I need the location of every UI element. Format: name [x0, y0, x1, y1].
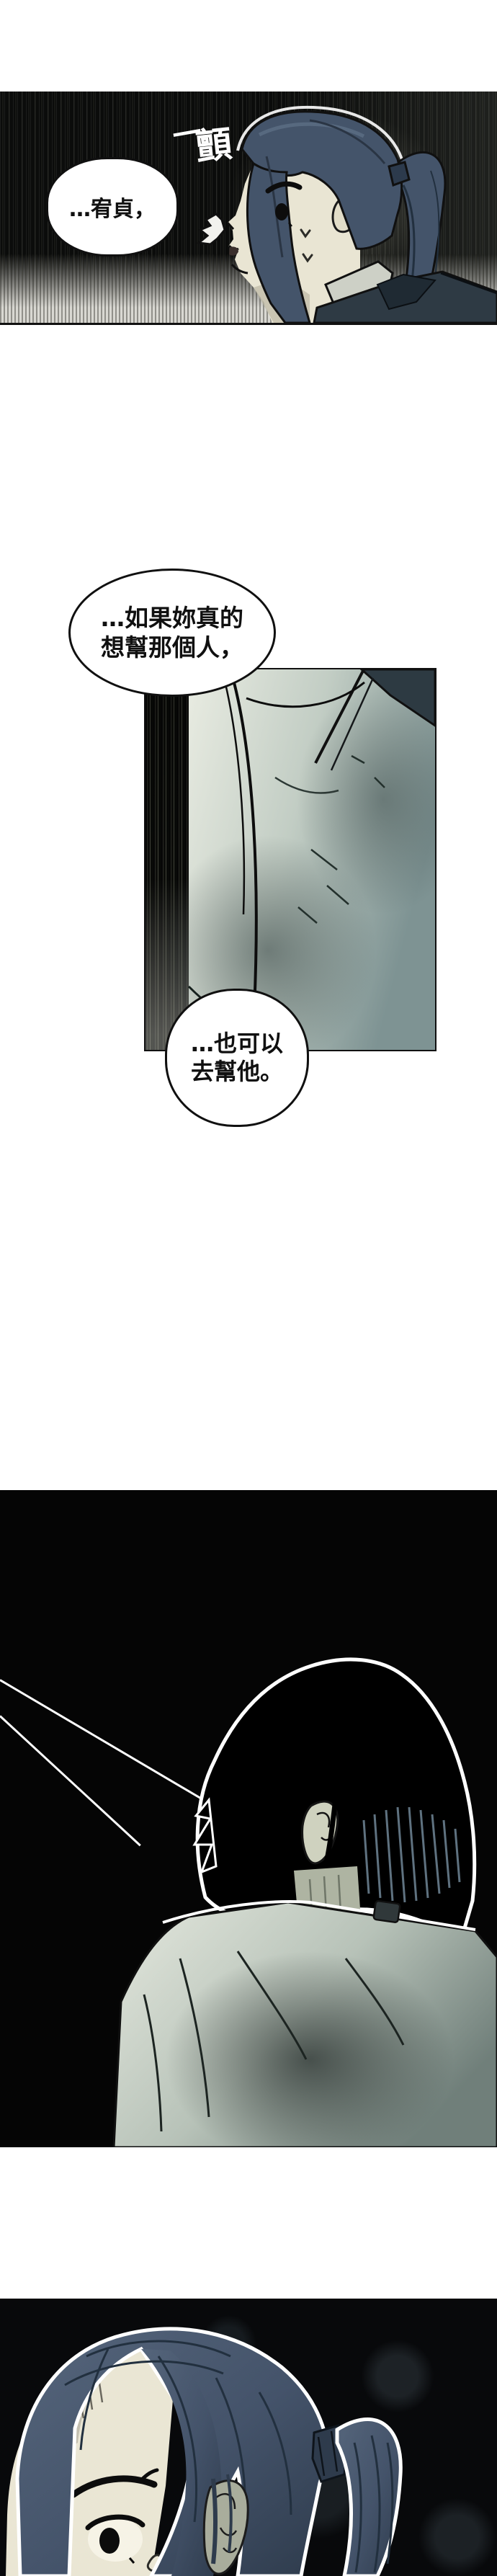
speech-bubble-if-you-want-to-help: …如果妳真的 想幫那個人， — [68, 569, 276, 697]
panel-3-back-of-head: 但是， 妳就別再 跟我們一起 行動了。 — [0, 1490, 497, 2147]
speech-bubble-yujen: …宥貞， — [46, 157, 179, 257]
sfx-shiver-char2: 顫 — [194, 126, 234, 166]
speech-line: …也可以 — [191, 1030, 283, 1058]
speech-line: …如果妳真的 — [101, 603, 243, 633]
panel-2-torso — [144, 668, 436, 1051]
back-of-head-art — [0, 1490, 497, 2147]
pigtail-girl-art — [0, 2299, 497, 2576]
torso-shirt-art — [145, 669, 435, 1050]
panel-4-pigtail-girl — [0, 2299, 497, 2576]
comic-page: 一 顫 …宥貞， — [0, 0, 497, 2576]
speech-text: …宥貞， — [69, 191, 156, 223]
speech-line: 去幫他。 — [191, 1058, 283, 1086]
speech-bubble-go-help-him: …也可以 去幫他。 — [165, 989, 309, 1127]
speech-line: 想幫那個人， — [101, 633, 243, 662]
